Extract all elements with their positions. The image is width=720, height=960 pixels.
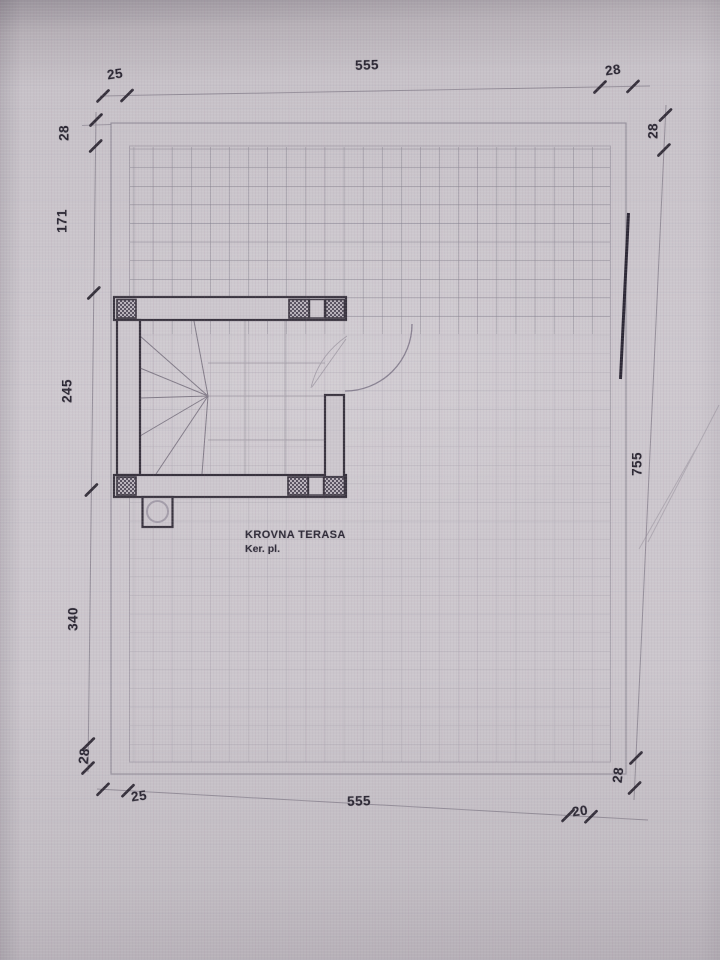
dim-left-stair: 245: [60, 379, 75, 403]
stair-wall-left: [117, 320, 140, 475]
dim-left-bottom-wall: 28: [76, 747, 93, 764]
floor-plan-drawing: [0, 0, 720, 960]
dim-bottom-left-offset: 25: [130, 787, 148, 804]
dim-line-left: [88, 112, 96, 772]
wall-opening-bottom: [309, 477, 324, 495]
dim-right-span: 755: [630, 452, 645, 476]
dim-bottom-span: 555: [347, 793, 371, 809]
room-finish: Ker. pl.: [245, 543, 346, 555]
dim-right-top-wall: 28: [646, 123, 661, 139]
dim-line-bottom: [97, 789, 648, 820]
room-label: KROVNA TERASA Ker. pl.: [245, 529, 346, 555]
dim-top-right-wall: 28: [604, 61, 622, 78]
dim-line-top: [100, 86, 650, 96]
stair-wall-right: [325, 395, 344, 477]
room-name: KROVNA TERASA: [245, 529, 346, 541]
tile-grid: [130, 147, 610, 762]
parapet-heavy-segment: [621, 213, 629, 379]
dim-top-span: 555: [355, 57, 379, 73]
photographed-floor-plan: { "title": { "room": "KROVNA TERASA", "f…: [0, 0, 720, 960]
chimney: [143, 497, 173, 527]
tile-grid-light: [130, 334, 610, 762]
drawing-scene: 25 555 28 28 171 245 340 28 28 755 25 55…: [0, 0, 720, 960]
dim-left-top-wall: 28: [57, 125, 72, 141]
dim-bottom-right-wall: 28: [610, 766, 627, 783]
wall-opening-top: [310, 300, 325, 319]
dim-left-lower: 340: [66, 607, 81, 631]
dim-left-upper: 171: [55, 209, 70, 233]
dim-bottom-right-offset: 20: [571, 802, 589, 819]
dim-top-left-offset: 25: [106, 65, 124, 82]
